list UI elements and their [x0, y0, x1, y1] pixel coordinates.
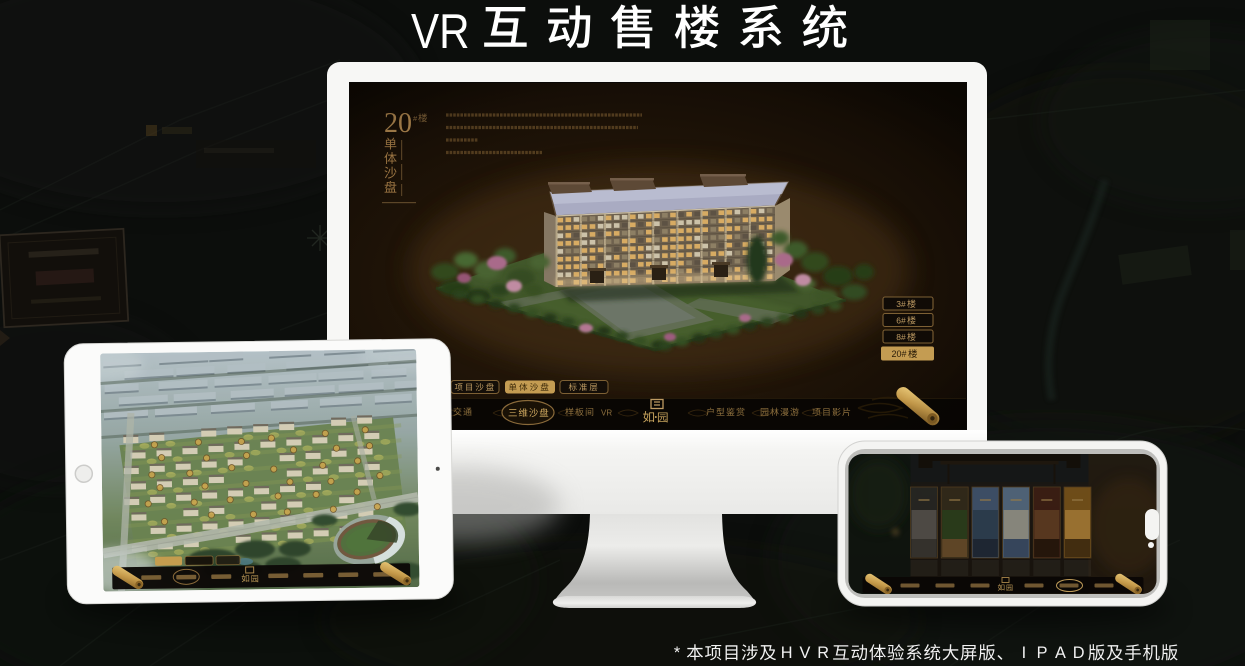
- svg-text:H: H: [781, 644, 793, 662]
- svg-text:*: *: [674, 644, 681, 662]
- svg-text:A: A: [1055, 644, 1066, 662]
- svg-text:VR: VR: [411, 4, 470, 59]
- svg-text:D: D: [1073, 644, 1085, 662]
- svg-text:V: V: [799, 644, 810, 662]
- svg-text:R: R: [817, 644, 829, 662]
- svg-text:P: P: [1037, 644, 1048, 662]
- svg-text:I: I: [1022, 644, 1027, 662]
